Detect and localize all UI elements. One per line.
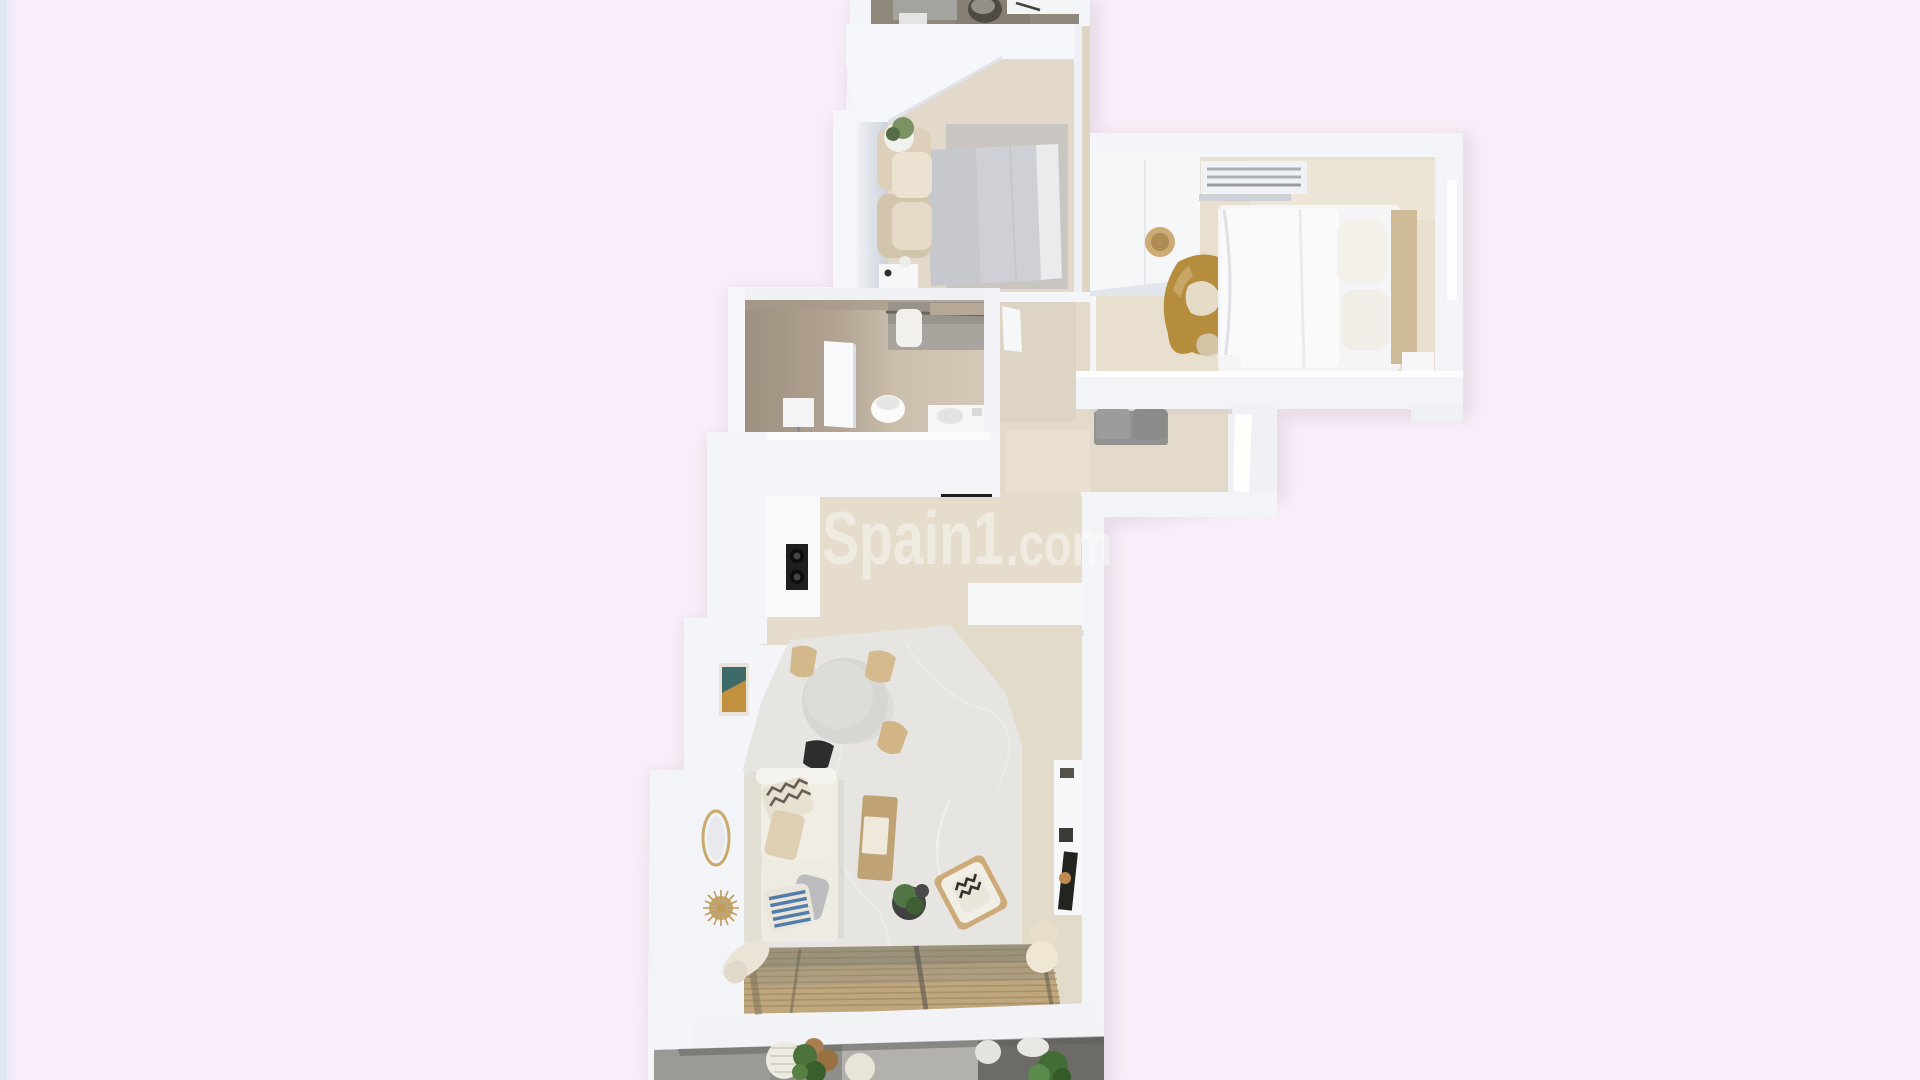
svg-text:.com: .com [1006,511,1112,578]
svg-text:Spain1: Spain1 [822,496,1004,580]
